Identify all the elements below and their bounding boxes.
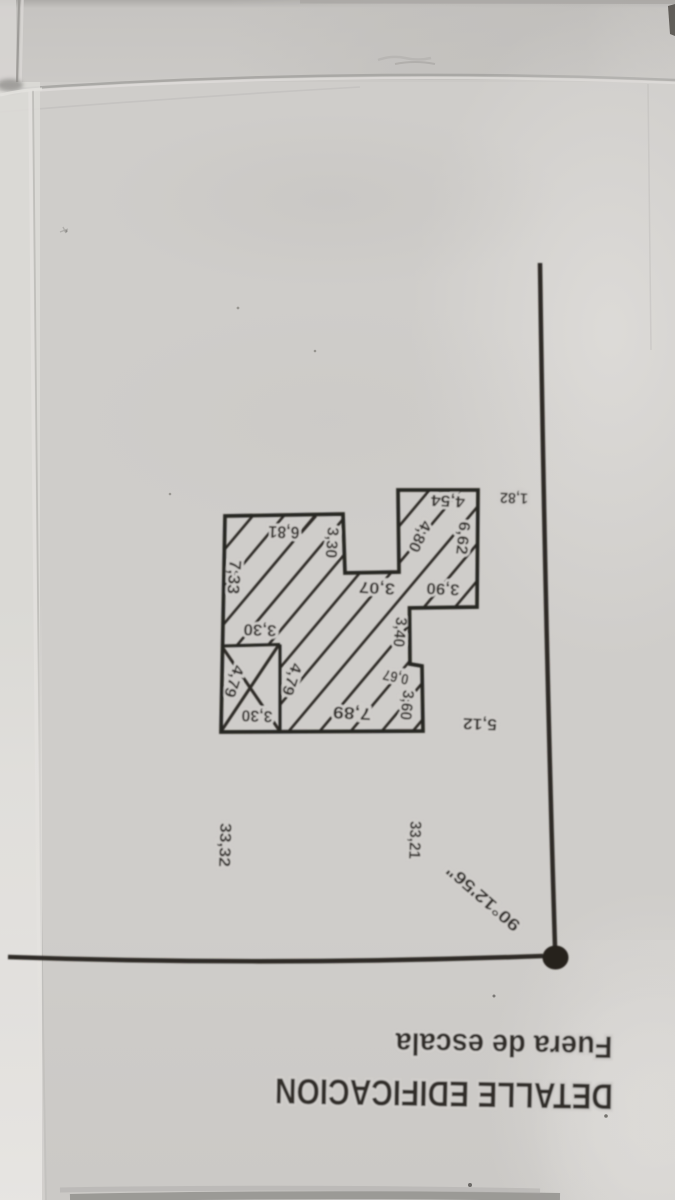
svg-text:Fuera de escala: Fuera de escala xyxy=(394,1026,612,1065)
svg-text:33,21: 33,21 xyxy=(405,821,423,860)
svg-text:3,30: 3,30 xyxy=(322,526,341,558)
svg-text:3,40: 3,40 xyxy=(389,616,409,648)
svg-text:3,30: 3,30 xyxy=(243,620,277,638)
svg-text:33,32: 33,32 xyxy=(215,823,234,868)
svg-text:DETALLE EDIFICACION: DETALLE EDIFICACION xyxy=(275,1071,614,1118)
svg-text:3,90: 3,90 xyxy=(426,579,460,598)
svg-text:3,30: 3,30 xyxy=(241,706,273,724)
svg-text:6,81: 6,81 xyxy=(268,522,300,542)
svg-text:4,54: 4,54 xyxy=(430,491,465,510)
svg-text:6,62: 6,62 xyxy=(452,521,472,556)
svg-text:7,89: 7,89 xyxy=(332,703,371,724)
svg-text:5,12: 5,12 xyxy=(463,714,498,732)
svg-text:3,60: 3,60 xyxy=(396,689,416,721)
svg-text:1,82: 1,82 xyxy=(500,489,529,507)
svg-text:7,33: 7,33 xyxy=(223,559,244,594)
svg-text:3,07: 3,07 xyxy=(358,578,395,597)
